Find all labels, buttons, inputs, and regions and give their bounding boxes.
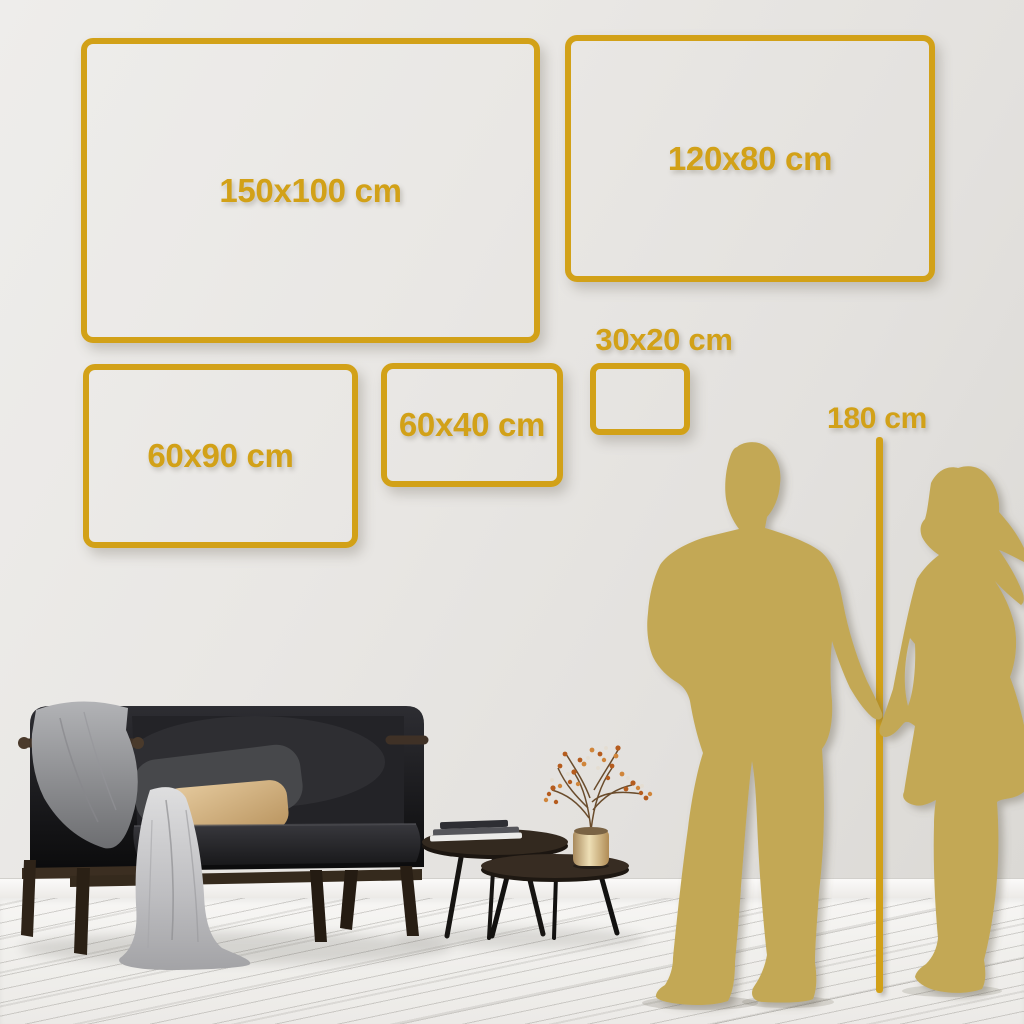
size-frame-30x20 [590,363,690,435]
sofa [18,701,424,970]
size-frame-120x80: 120x80 cm [565,35,935,282]
man-silhouette [647,442,882,1005]
size-guide-scene: 150x100 cm 120x80 cm 60x90 cm 60x40 cm 3… [0,0,1024,1024]
size-frame-60x90: 60x90 cm [83,364,358,548]
size-frame-60x40: 60x40 cm [381,363,563,487]
size-label-120x80: 120x80 cm [668,140,832,178]
size-label-60x90: 60x90 cm [147,437,293,475]
size-label-60x40: 60x40 cm [399,406,545,444]
living-room-furniture [0,690,660,1024]
size-label-30x20: 30x20 cm [564,322,764,358]
size-label-150x100: 150x100 cm [219,172,401,210]
woman-silhouette [879,466,1024,993]
couple-silhouette [600,430,1024,1024]
size-frame-150x100: 150x100 cm [81,38,540,343]
